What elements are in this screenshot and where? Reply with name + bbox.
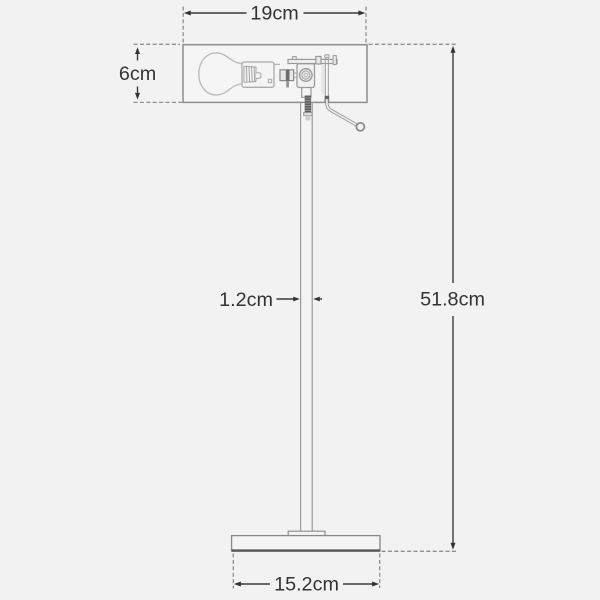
svg-text:6cm: 6cm — [119, 63, 156, 85]
svg-text:15.2cm: 15.2cm — [274, 574, 339, 596]
svg-text:51.8cm: 51.8cm — [420, 289, 485, 311]
svg-text:19cm: 19cm — [250, 3, 298, 25]
svg-text:1.2cm: 1.2cm — [219, 289, 273, 311]
